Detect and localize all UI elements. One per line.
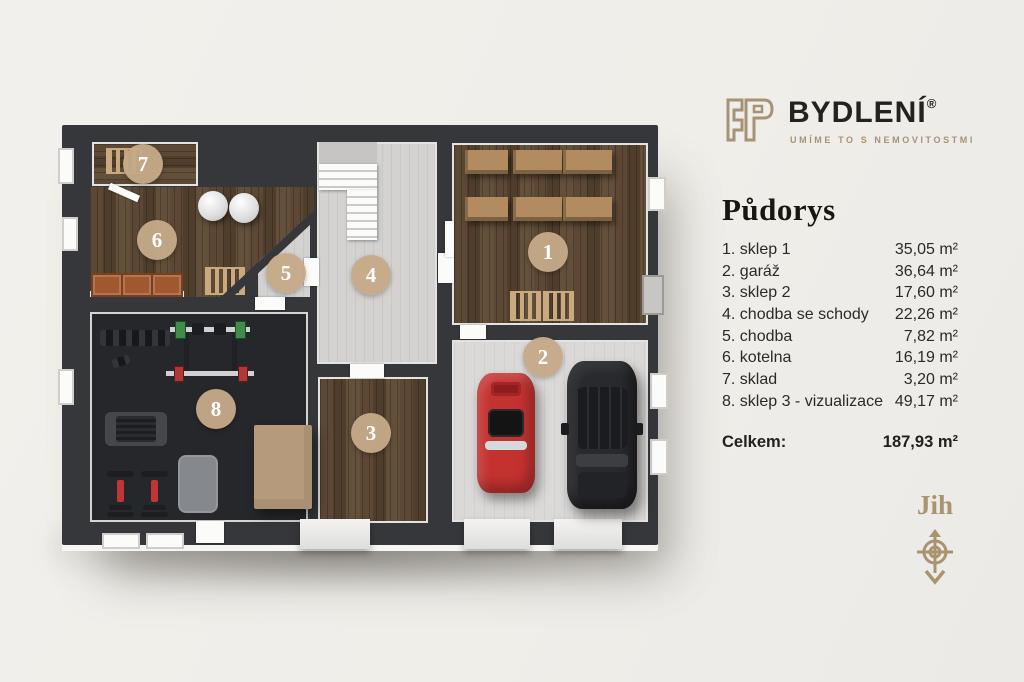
niche-right <box>642 275 664 315</box>
legend-row: 2. garáž 36,64 m² <box>722 261 958 283</box>
compass-label: Jih <box>875 490 995 521</box>
red-car-trunk <box>491 382 521 396</box>
bike-frame <box>151 480 158 502</box>
legend-area: 7,82 m² <box>904 328 958 346</box>
red-car-seats <box>488 409 524 437</box>
black-suv-windshield <box>576 454 628 467</box>
storage-box <box>254 425 312 509</box>
boiler-tank <box>229 193 259 223</box>
room-legend: 1. sklep 1 35,05 m² 2. garáž 36,64 m² 3.… <box>722 239 958 413</box>
garage-door-1 <box>464 519 530 549</box>
total-value: 187,93 m² <box>883 433 958 452</box>
legend-label: 7. sklad <box>722 371 777 389</box>
window-right-2 <box>650 373 668 409</box>
legend-label: 3. sklep 2 <box>722 284 790 302</box>
legend-row: 6. kotelna 16,19 m² <box>722 347 958 369</box>
weight-plate-red <box>174 366 184 382</box>
room-number-3: 3 <box>351 413 391 453</box>
floorplan-page: 1 2 3 4 5 6 7 8 BYDLENÍ® UMÍME TO S NEMO… <box>0 0 1024 682</box>
legend-row: 7. sklad 3,20 m² <box>722 369 958 391</box>
legend-area: 22,26 m² <box>895 306 958 324</box>
legend-area: 16,19 m² <box>895 349 958 367</box>
legend-row: 1. sklep 1 35,05 m² <box>722 239 958 261</box>
legend-label: 8. sklep 3 - vizualizace <box>722 393 883 411</box>
brand-name: BYDLENÍ® <box>788 96 936 130</box>
room-number-6: 6 <box>137 220 177 260</box>
bike-base <box>107 512 134 517</box>
legend-label: 4. chodba se schody <box>722 306 869 324</box>
suv-mirror <box>635 423 643 435</box>
crate <box>121 273 153 297</box>
legend-label: 2. garáž <box>722 263 780 281</box>
room-number-2: 2 <box>523 337 563 377</box>
brand-tagline: UMÍME TO S NEMOVITOSTMI <box>790 135 975 145</box>
legend-label: 6. kotelna <box>722 349 791 367</box>
shelf <box>465 197 508 221</box>
shelf <box>465 150 508 174</box>
logo-monogram-icon <box>722 92 778 148</box>
door-sklep1-to-garage <box>460 325 486 339</box>
legend-area: 36,64 m² <box>895 263 958 281</box>
window-right-3 <box>650 439 668 475</box>
brand-text: BYDLENÍ <box>788 96 927 129</box>
shelf <box>513 197 562 221</box>
weight-plate-dark <box>192 323 204 335</box>
bike-base <box>109 505 132 510</box>
door-hall4-to-sklep1 <box>438 253 454 283</box>
legend-area: 35,05 m² <box>895 241 958 259</box>
room-number-4: 4 <box>351 255 391 295</box>
stair-flight-upper <box>319 164 377 190</box>
weight-plate-green <box>175 321 186 339</box>
garage-door-2 <box>554 519 622 549</box>
total-label: Celkem: <box>722 433 786 452</box>
shelf <box>513 150 562 174</box>
registered-mark: ® <box>927 96 937 111</box>
boiler-tank <box>198 191 228 221</box>
legend-area: 17,60 m² <box>895 284 958 302</box>
bike-base <box>143 505 166 510</box>
treadmill <box>105 412 167 446</box>
weight-plate-green <box>235 321 246 339</box>
black-suv-hood <box>578 472 626 498</box>
exercise-bike <box>107 469 134 517</box>
dumbbell-rack <box>100 330 170 346</box>
room-number-8: 8 <box>196 389 236 429</box>
total-row: Celkem: 187,93 m² <box>722 433 958 452</box>
weight-plate-dark <box>214 323 226 335</box>
legend-row: 3. sklep 2 17,60 m² <box>722 282 958 304</box>
crate <box>91 273 123 297</box>
legend-row: 8. sklep 3 - vizualizace 49,17 m² <box>722 391 958 413</box>
page-title: Půdorys <box>722 192 836 228</box>
pallet <box>543 291 574 321</box>
room-number-1: 1 <box>528 232 568 272</box>
bike-base <box>141 512 168 517</box>
legend-area: 49,17 m² <box>895 393 958 411</box>
shelf <box>563 197 612 221</box>
window-left-2 <box>62 217 78 251</box>
door-leaf-sklep1 <box>445 221 454 257</box>
suv-mirror <box>561 423 569 435</box>
exercise-mat <box>178 455 218 513</box>
bike-handlebar <box>141 471 168 477</box>
treadmill-belt <box>116 416 156 442</box>
window-bottom-1 <box>102 533 140 549</box>
exercise-bike <box>141 469 168 517</box>
legend-row: 5. chodba 7,82 m² <box>722 326 958 348</box>
window-left-3 <box>58 369 74 405</box>
window-right-1 <box>648 177 666 211</box>
compass-south-icon <box>905 523 965 585</box>
bike-frame <box>117 480 124 502</box>
legend-area: 3,20 m² <box>904 371 958 389</box>
shelf <box>563 150 612 174</box>
room-number-7: 7 <box>123 144 163 184</box>
ramp-sklep2-exterior <box>300 519 370 549</box>
floor-plan: 1 2 3 4 5 6 7 8 <box>62 125 658 545</box>
door-chodba-to-gym <box>255 297 285 310</box>
weight-plate-red <box>238 366 248 382</box>
black-suv-roof <box>576 387 628 449</box>
window-left-1 <box>58 148 74 184</box>
door-gym-exterior <box>196 521 224 543</box>
pallet <box>510 291 541 321</box>
window-bottom-2 <box>146 533 184 549</box>
bike-handlebar <box>107 471 134 477</box>
black-suv <box>567 361 637 509</box>
room-number-5: 5 <box>266 253 306 293</box>
crate <box>151 273 183 297</box>
legend-label: 1. sklep 1 <box>722 241 790 259</box>
door-hall4-to-sklep2 <box>350 364 384 378</box>
legend-row: 4. chodba se schody 22,26 m² <box>722 304 958 326</box>
legend-label: 5. chodba <box>722 328 792 346</box>
red-car-windshield <box>485 441 527 450</box>
stair-landing <box>319 142 377 164</box>
stair-flight-lower <box>347 190 377 240</box>
red-car <box>477 373 535 493</box>
door-hall4-left <box>304 258 319 286</box>
